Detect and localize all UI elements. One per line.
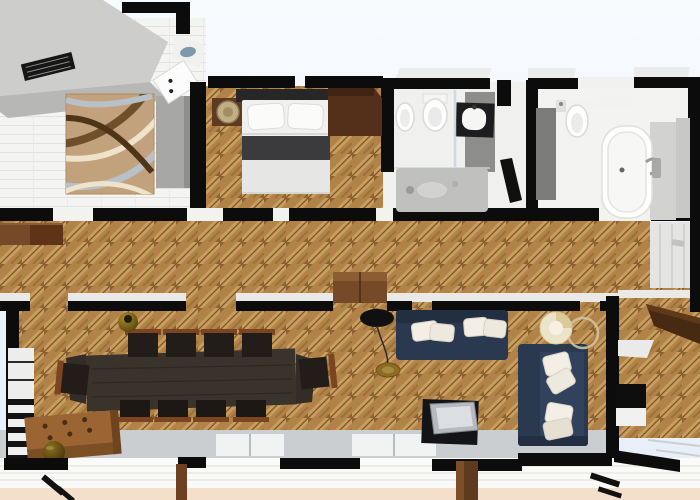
wardrobe-gray-edge <box>184 96 190 188</box>
dining-chair-frame <box>155 417 191 422</box>
study-counter-white <box>616 408 646 426</box>
dining-chair-frame <box>233 417 269 422</box>
tall-cabinet-gray <box>536 108 556 200</box>
shower-drain <box>406 186 414 194</box>
floorplan-render <box>0 0 700 500</box>
study-counter-black <box>616 384 646 408</box>
study-top-sill <box>618 290 700 298</box>
coffee-table-tray-inner <box>436 406 473 429</box>
pendant-lamp-top <box>124 315 132 323</box>
dining-chair <box>196 400 226 419</box>
wall-ledge <box>528 68 576 78</box>
toilet-2-bowl <box>571 113 583 133</box>
dining-chair <box>242 333 272 357</box>
dining-chair <box>204 333 234 357</box>
wall <box>236 301 333 311</box>
bed-runner <box>242 136 330 160</box>
dining-chair-frame <box>117 417 153 422</box>
wardrobe-gray <box>156 96 188 188</box>
wall-sill <box>68 293 186 302</box>
wall <box>387 301 412 311</box>
door-opening <box>376 208 393 221</box>
bed-pillow <box>287 103 323 130</box>
bathtub-inner <box>608 132 646 212</box>
bathtub-drain <box>620 168 625 173</box>
door-opening <box>53 208 93 221</box>
door-opening <box>273 208 289 221</box>
door-opening <box>187 208 223 221</box>
hallway-top-wall <box>0 208 700 221</box>
wall <box>68 301 186 311</box>
wall-shelf-left <box>8 348 34 398</box>
wall <box>190 82 206 210</box>
plant-pot-highlight <box>46 446 54 450</box>
dining-chair <box>236 400 266 419</box>
dining-chair <box>59 363 90 396</box>
terrace-post-face <box>456 461 464 500</box>
wall <box>634 77 692 88</box>
shower-tray-shade <box>417 182 447 198</box>
bath2-right-panel <box>676 118 690 218</box>
hall-console-dark <box>30 223 63 245</box>
dining-chair <box>120 400 150 419</box>
shower-head <box>452 181 458 187</box>
bathroom-2-door-gap <box>578 77 634 88</box>
table-lamp-inner <box>223 107 233 117</box>
wall-sill <box>0 293 30 302</box>
arc-lamp-base-inner <box>382 367 394 374</box>
wardrobe-brown-shade <box>328 88 374 96</box>
sofa-pillow <box>429 323 455 342</box>
vanity-sink <box>462 108 487 131</box>
paper-lamp-core <box>549 321 563 335</box>
dining-chair <box>128 333 158 357</box>
wall-ledge <box>634 67 690 77</box>
wall <box>528 78 578 89</box>
wall <box>280 458 360 469</box>
wall <box>394 78 490 89</box>
dining-chair <box>158 400 188 419</box>
wall <box>176 2 190 34</box>
tub-mixer <box>652 158 661 178</box>
wall <box>208 76 295 88</box>
dining-chair-frame <box>193 417 229 422</box>
bath2-faucet-knob <box>559 102 563 106</box>
wall <box>497 80 511 106</box>
wall <box>381 78 394 172</box>
toilet-bowl <box>428 107 442 127</box>
wall <box>690 216 700 312</box>
wall <box>518 453 612 466</box>
sofa-pillow <box>483 319 507 339</box>
dining-chair <box>166 333 196 357</box>
terrace-post <box>176 464 187 500</box>
hallway-floor <box>0 218 650 300</box>
bidet-bowl <box>400 109 410 127</box>
wall-ledge <box>396 68 492 78</box>
wall <box>606 296 619 458</box>
dining-chair <box>299 357 330 390</box>
wall <box>4 458 68 470</box>
bed-pillow <box>247 103 285 130</box>
wall <box>432 301 580 311</box>
wall-sill <box>236 293 618 302</box>
bed-sheet <box>242 160 330 194</box>
wall <box>305 76 383 88</box>
floorplan-canvas <box>0 0 700 500</box>
arc-lamp-shade <box>360 309 394 327</box>
